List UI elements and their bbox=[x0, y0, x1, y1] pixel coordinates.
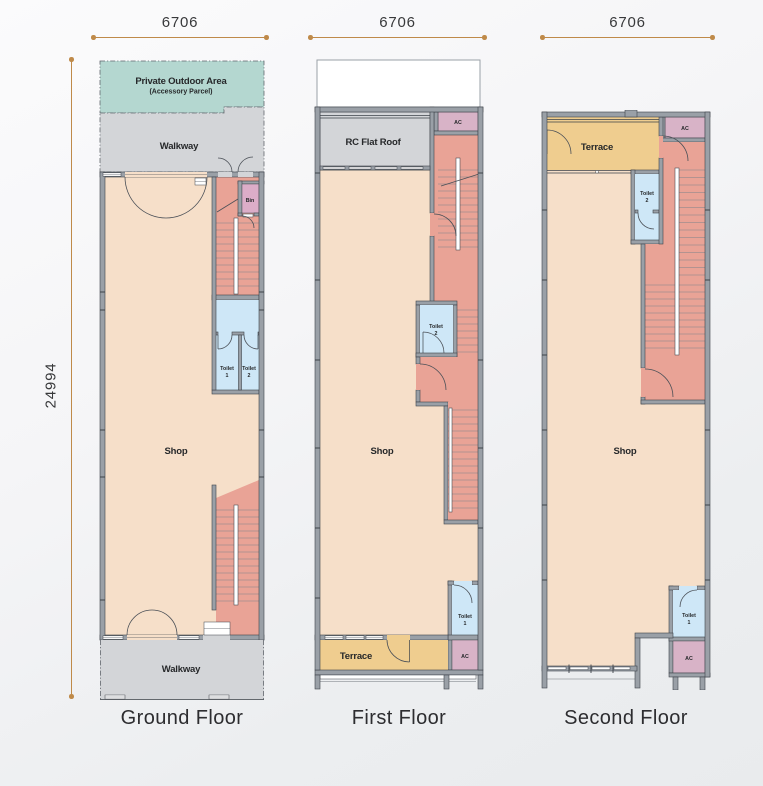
first-floor-title: First Floor bbox=[313, 707, 485, 730]
ground-width-dimension-line bbox=[93, 37, 267, 38]
ground-width-dimension: 6706 bbox=[93, 14, 267, 31]
second-ac-top: AC bbox=[661, 117, 705, 142]
first-toilet1-number: 1 bbox=[464, 621, 467, 627]
ground-private-outdoor-label: Private Outdoor Area bbox=[135, 76, 227, 87]
first-ac-bottom-label: AC bbox=[461, 654, 469, 660]
floorplan-sheet: 6706 6706 6706 24994 Private Outdoor Are… bbox=[0, 0, 763, 786]
ground-height-dimension-line bbox=[71, 59, 72, 697]
ground-toilet-block: Toilet 1 Toilet 2 bbox=[212, 295, 259, 394]
ground-walkway-bottom: Walkway bbox=[100, 640, 264, 700]
ground-walkway-top: Walkway bbox=[100, 107, 264, 172]
first-toilet2-number: 2 bbox=[435, 331, 438, 337]
ground-height-dimension: 24994 bbox=[43, 356, 60, 416]
first-rc-flat-roof-label: RC Flat Roof bbox=[345, 137, 401, 148]
ground-stairs-upper: Bin bbox=[216, 177, 264, 295]
second-toilet2: Toilet 2 bbox=[631, 170, 663, 244]
ground-stairs-lower bbox=[212, 480, 259, 635]
second-terrace-label: Terrace bbox=[581, 142, 613, 153]
first-stair-landing bbox=[416, 357, 478, 402]
second-floor-title: Second Floor bbox=[540, 707, 712, 730]
ground-toilet2-label: Toilet bbox=[242, 366, 256, 372]
second-floor-plan: Terrace AC Toilet 2 bbox=[540, 110, 712, 690]
first-width-dimension-line bbox=[310, 37, 485, 38]
first-toilet2-label: Toilet bbox=[429, 324, 443, 330]
second-terrace: Terrace bbox=[542, 117, 659, 173]
first-toilet2: Toilet 2 bbox=[416, 301, 457, 357]
first-rc-flat-roof: RC Flat Roof bbox=[320, 112, 430, 170]
second-toilet2-number: 2 bbox=[646, 198, 649, 204]
second-toilet1-ac: Toilet 1 AC bbox=[669, 586, 710, 677]
ground-floor-plan: Private Outdoor Area (Accessory Parcel) … bbox=[97, 60, 267, 700]
ground-shop-label: Shop bbox=[165, 446, 188, 457]
ground-bin-label: Bin bbox=[246, 198, 255, 204]
ground-accessory-parcel-label: (Accessory Parcel) bbox=[149, 89, 212, 96]
ground-walkway-top-label: Walkway bbox=[160, 141, 199, 152]
first-ac-top-label: AC bbox=[454, 120, 462, 126]
first-open-void bbox=[317, 60, 480, 107]
first-toilet1-label: Toilet bbox=[458, 614, 472, 620]
second-toilet1-number: 1 bbox=[688, 620, 691, 626]
first-width-dimension: 6706 bbox=[310, 14, 485, 31]
second-shop-floor-front bbox=[547, 634, 635, 666]
second-ac-bottom-label: AC bbox=[685, 656, 693, 662]
first-terrace: Terrace bbox=[315, 635, 448, 670]
first-shop-label: Shop bbox=[371, 446, 394, 457]
first-floor-plan: RC Flat Roof AC Toilet bbox=[313, 58, 485, 690]
ground-toilet1-label: Toilet bbox=[220, 366, 234, 372]
ground-floor-title: Ground Floor bbox=[97, 707, 267, 730]
first-terrace-label: Terrace bbox=[340, 651, 372, 662]
ground-walkway-bottom-label: Walkway bbox=[162, 664, 201, 675]
second-ac-top-label: AC bbox=[681, 126, 689, 132]
ground-private-outdoor-area: Private Outdoor Area (Accessory Parcel) bbox=[100, 61, 264, 113]
first-toilet1-ac: Toilet 1 AC bbox=[448, 581, 478, 670]
second-toilet1-label: Toilet bbox=[682, 613, 696, 619]
ground-toilet2-number: 2 bbox=[248, 373, 251, 379]
second-toilet2-label: Toilet bbox=[640, 191, 654, 197]
second-width-dimension-line bbox=[542, 37, 713, 38]
ground-toilet1-number: 1 bbox=[226, 373, 229, 379]
first-front-edge bbox=[315, 670, 483, 689]
second-shop-label: Shop bbox=[614, 446, 637, 457]
second-width-dimension: 6706 bbox=[542, 14, 713, 31]
